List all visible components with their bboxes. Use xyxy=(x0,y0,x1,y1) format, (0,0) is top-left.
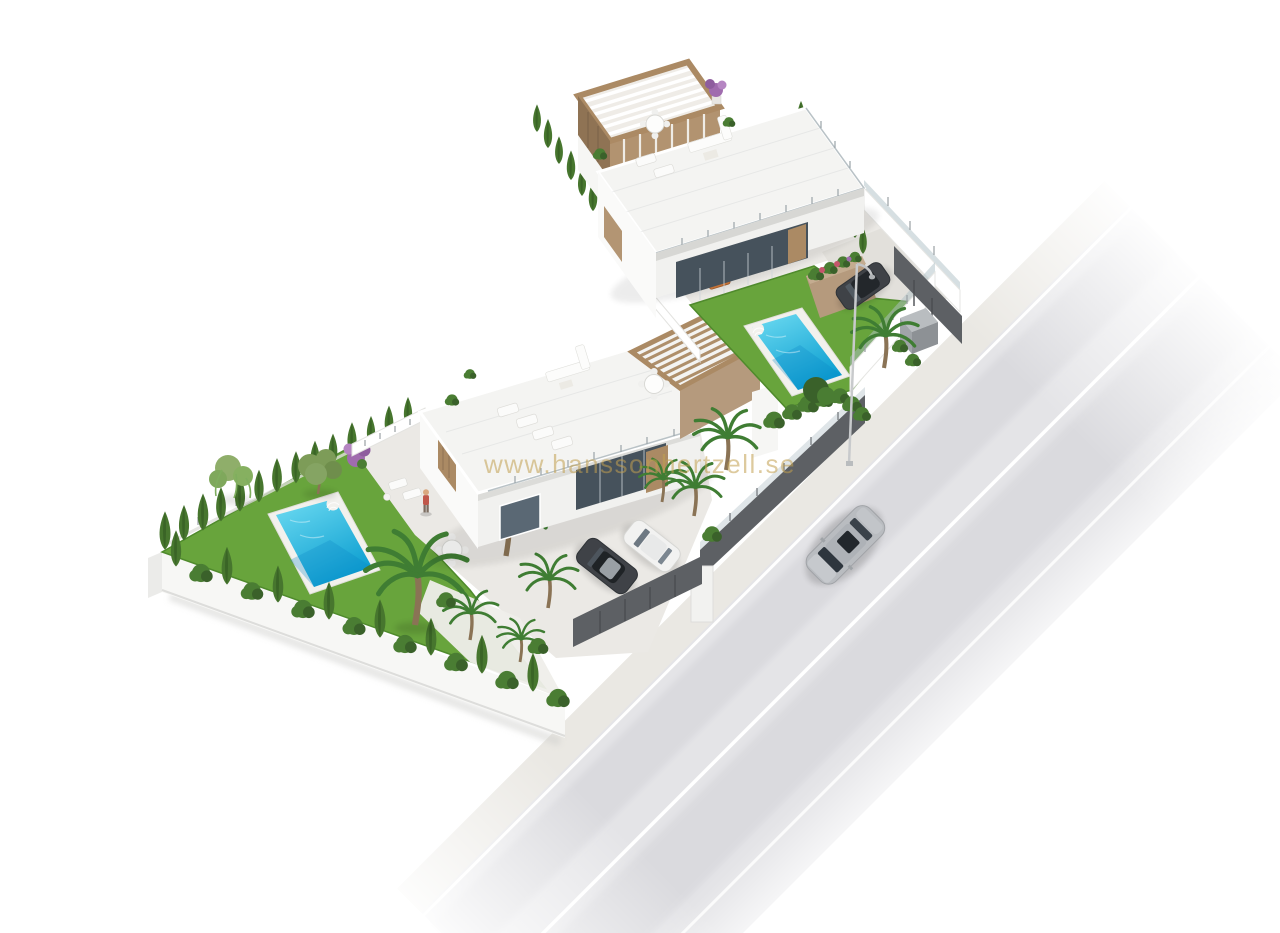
render-canvas: www.hanssonhertzell.se xyxy=(0,0,1280,933)
watermark: www.hanssonhertzell.se xyxy=(483,449,796,479)
weeping-tree xyxy=(209,455,253,505)
entrance-door-upper xyxy=(788,224,806,264)
retaining-wall-corner xyxy=(148,552,162,598)
architectural-render: www.hanssonhertzell.se xyxy=(0,0,1280,933)
